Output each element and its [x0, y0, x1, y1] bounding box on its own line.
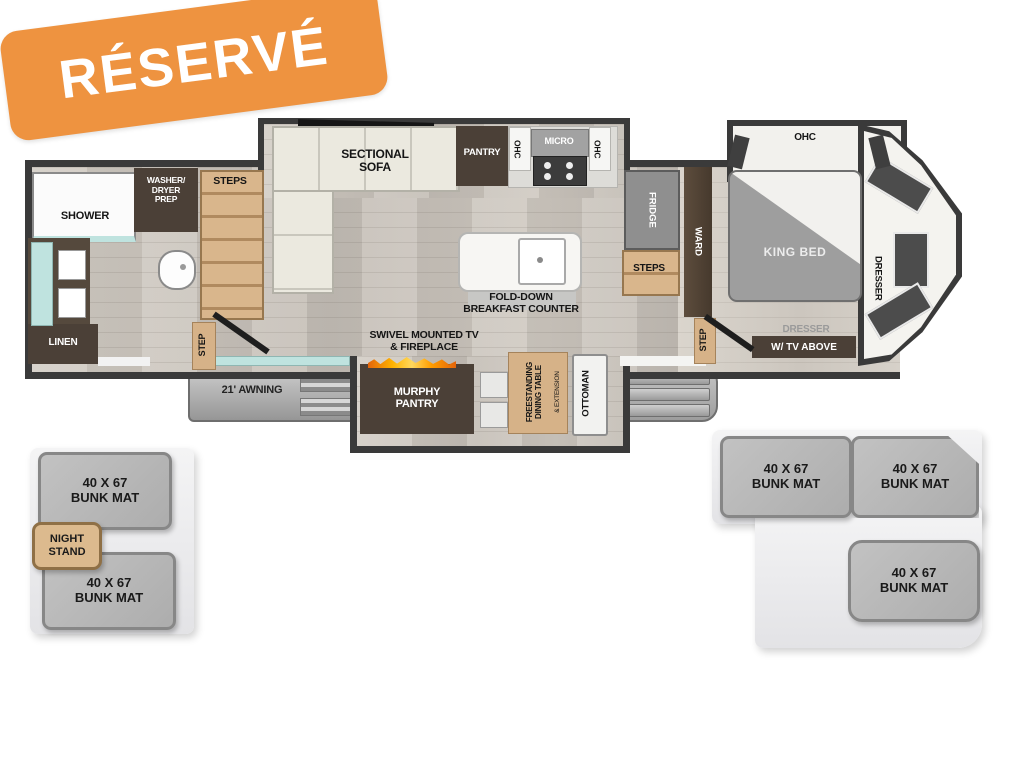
main-stairs-label: STEPS: [200, 176, 260, 188]
king-bed-label: KING BED: [740, 246, 849, 259]
wardrobe: WARD: [684, 167, 712, 317]
night-stand: NIGHT STAND: [32, 522, 102, 570]
bunk-mat: 40 X 67 BUNK MAT: [851, 436, 979, 518]
pantry-label: PANTRY: [454, 148, 510, 159]
bedroom-steps-label: STEPS: [618, 263, 680, 274]
bedroom-ohc-label: OHC: [760, 132, 850, 143]
bunk-mat-label: 40 X 67 BUNK MAT: [881, 462, 949, 492]
micro-label: MICRO: [531, 136, 587, 146]
dining-table-label-main: FREESTANDING DINING TABLE: [525, 362, 543, 422]
main-stairs: [200, 170, 264, 320]
bunk-mat-label: 40 X 67 BUNK MAT: [752, 462, 820, 492]
bunk-mat: 40 X 67 BUNK MAT: [848, 540, 980, 622]
lower-step-label: STEP: [197, 322, 209, 368]
baggage-door: [98, 357, 150, 366]
bunk-mat-label: 40 X 67 BUNK MAT: [880, 566, 948, 596]
island-label: FOLD-DOWN BREAKFAST COUNTER: [428, 292, 614, 316]
tv-fireplace-label: SWIVEL MOUNTED TV & FIREPLACE: [340, 330, 508, 354]
bunk-mat-label: 40 X 67 BUNK MAT: [75, 576, 143, 606]
awning-label: 21' AWNING: [202, 384, 302, 396]
ohc-right-label: OHC: [592, 130, 602, 168]
island-faucet: [537, 257, 543, 263]
toilet-flush: [180, 264, 186, 270]
night-stand-label: NIGHT STAND: [48, 533, 85, 558]
dresser-tv-label: W/ TV ABOVE: [771, 342, 837, 353]
vanity-counter: [31, 242, 53, 326]
shower-label: SHOWER: [40, 210, 130, 222]
reserved-badge-text: RÉSERVÉ: [56, 15, 333, 112]
dresser-label: DRESSER: [872, 240, 883, 316]
stove: [533, 156, 587, 186]
rv-floorplan-image: 40 X 67 BUNK MAT 40 X 67 BUNK MAT NIGHT …: [0, 0, 1024, 768]
fridge: FRIDGE: [624, 170, 680, 250]
washer-dryer-label: WASHER/ DRYER PREP: [134, 176, 198, 205]
dresser-tv-caption: DRESSER: [756, 324, 856, 335]
dining-table-label-ext: & EXTENSION: [554, 371, 561, 413]
bedroom-step-label: STEP: [698, 318, 710, 362]
dining-chair: [480, 372, 508, 398]
dining-chair: [480, 402, 508, 428]
king-bed: KING BED: [728, 170, 862, 302]
toilet: [158, 250, 196, 290]
sofa-label: SECTIONAL SOFA: [300, 148, 450, 175]
murphy-pantry-label: MURPHY PANTRY: [360, 386, 474, 411]
fridge-label: FRIDGE: [647, 192, 658, 228]
vanity-sink: [58, 288, 86, 318]
bunk-mat-label: 40 X 67 BUNK MAT: [71, 476, 139, 506]
cap-window: [893, 232, 929, 288]
bunk-mat: 40 X 67 BUNK MAT: [38, 452, 172, 530]
ottoman-label: OTTOMAN: [582, 355, 595, 433]
window-glass: [212, 356, 350, 366]
dining-table-label: FREESTANDING DINING TABLE & EXTENSION: [517, 352, 557, 432]
ward-label: WARD: [693, 227, 704, 256]
shower: [32, 172, 136, 242]
bed-blanket-fold: [730, 172, 860, 300]
linen-label: LINEN: [28, 337, 98, 348]
ohc-left-label: OHC: [512, 130, 522, 168]
bunk-mat: 40 X 67 BUNK MAT: [720, 436, 852, 518]
stove-burner: [544, 162, 551, 169]
vanity-sink: [58, 250, 86, 280]
entry-step: [626, 404, 710, 417]
dresser-tv: W/ TV ABOVE: [752, 336, 856, 358]
entry-step: [626, 388, 710, 401]
